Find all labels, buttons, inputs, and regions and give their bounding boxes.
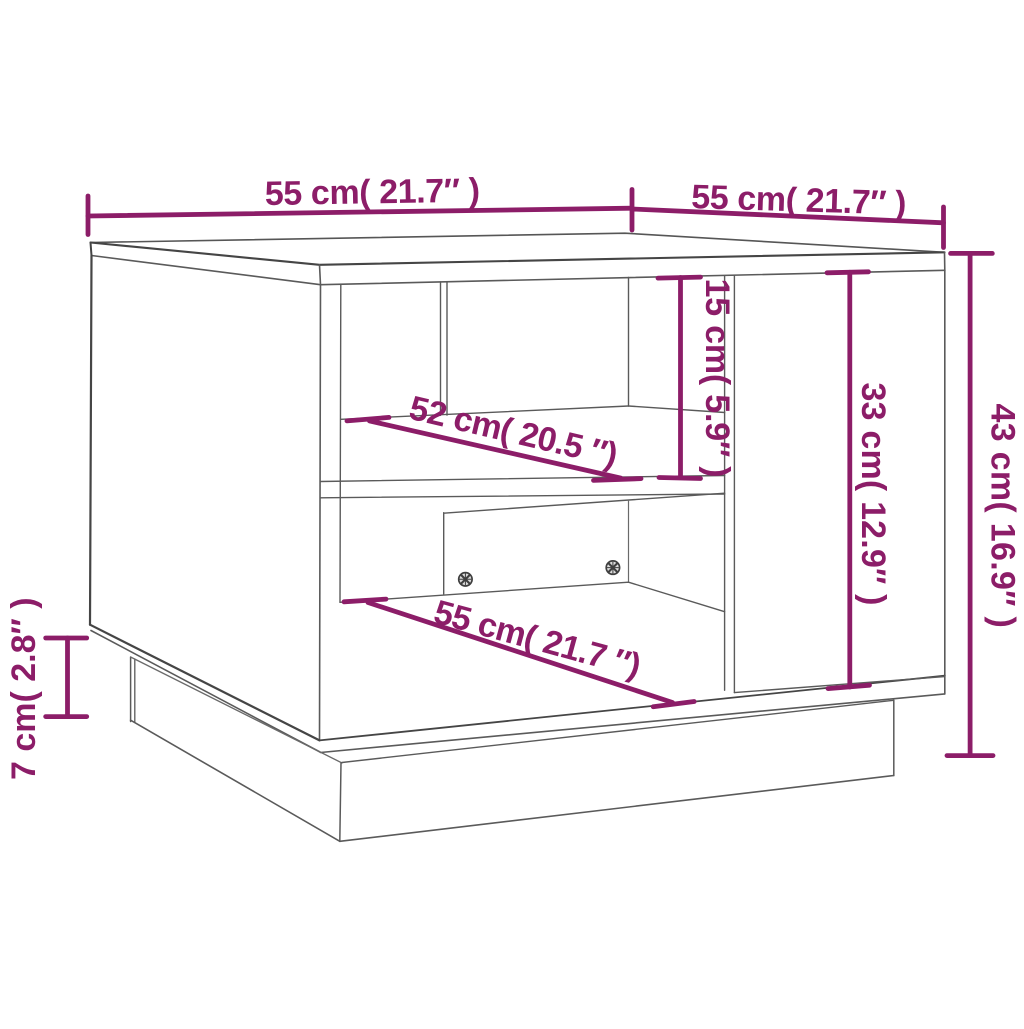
svg-text:55 cm( 21.7″ ): 55 cm( 21.7″ ) xyxy=(265,172,480,213)
svg-text:43 cm( 16.9″ ): 43 cm( 16.9″ ) xyxy=(984,404,1022,629)
svg-text:33 cm( 12.9″ ): 33 cm( 12.9″ ) xyxy=(854,383,892,606)
svg-text:7 cm( 2.8″ ): 7 cm( 2.8″ ) xyxy=(5,597,43,780)
svg-text:15 cm( 5.9″ ): 15 cm( 5.9″ ) xyxy=(698,279,736,478)
svg-text:55 cm( 21.7″ ): 55 cm( 21.7″ ) xyxy=(691,178,907,223)
